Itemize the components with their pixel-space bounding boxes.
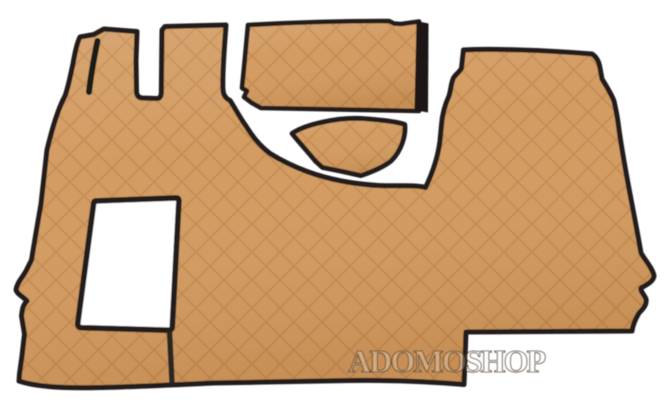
svg-text:ADOMOSHOP: ADOMOSHOP xyxy=(348,343,546,379)
